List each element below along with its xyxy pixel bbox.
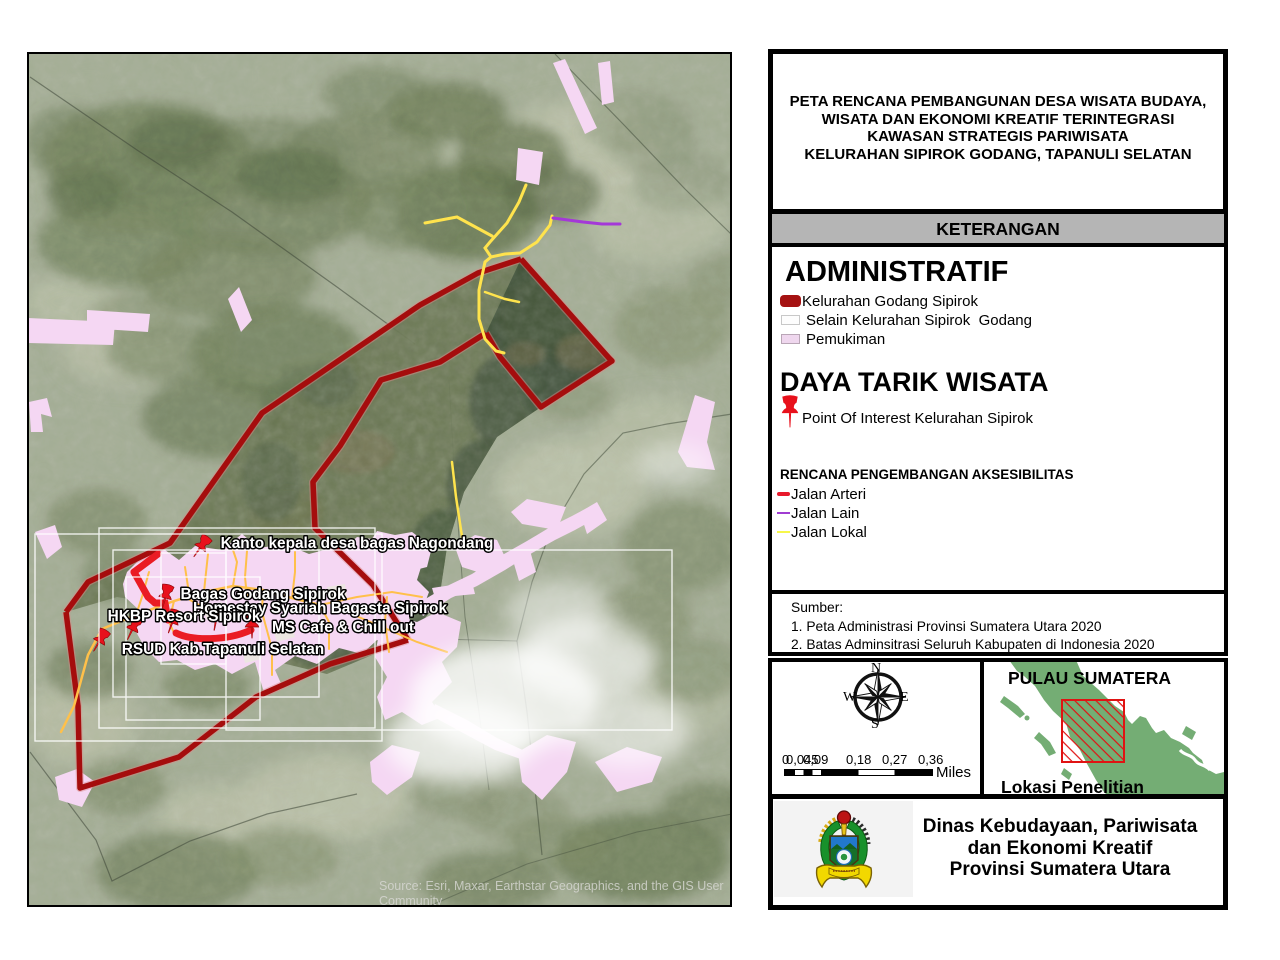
svg-text:Source: Esri, Maxar, Earthstar: Source: Esri, Maxar, Earthstar Geographi…	[379, 879, 724, 893]
svg-text:Kanto kepala desa bagas Nagond: Kanto kepala desa bagas Nagondang	[221, 535, 494, 552]
svg-text:MS Cafe & Chill out: MS Cafe & Chill out	[272, 619, 414, 636]
svg-text:RSUD Kab.Tapanuli Selatan: RSUD Kab.Tapanuli Selatan	[122, 641, 324, 658]
svg-text:HKBP Resort Sipirok: HKBP Resort Sipirok	[108, 608, 261, 625]
